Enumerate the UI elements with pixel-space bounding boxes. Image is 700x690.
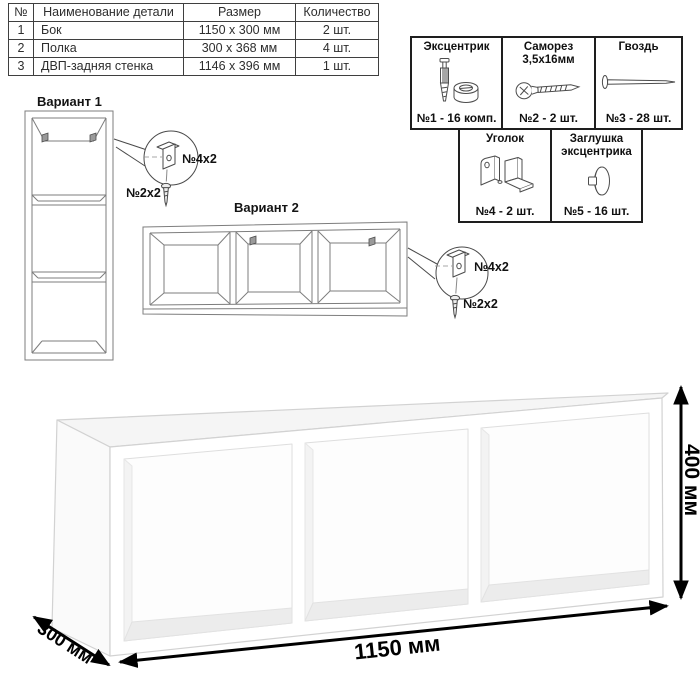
part-qty: 2 шт. bbox=[296, 22, 379, 40]
cam-bolt-icon bbox=[426, 54, 488, 111]
hardware-cell-nail: Гвоздь №3 - 28 шт. bbox=[594, 38, 681, 128]
part-num: 1 bbox=[9, 22, 34, 40]
part-size: 300 x 368 мм bbox=[184, 40, 296, 58]
screw-qty-label: №2x2 bbox=[463, 297, 498, 311]
hardware-qty: №3 - 28 шт. bbox=[606, 111, 672, 125]
hardware-cell-screw: Саморез 3,5х16мм №2 - 2 шт. bbox=[501, 38, 594, 128]
shelf-3d-drawing: 1150 мм 400 мм 300 мм bbox=[0, 370, 700, 690]
part-qty: 4 шт. bbox=[296, 40, 379, 58]
col-header-num: № bbox=[9, 4, 34, 22]
part-size: 1150 x 300 мм bbox=[184, 22, 296, 40]
variant2-callout: №4x2 №2x2 bbox=[408, 247, 509, 318]
variant2-shelf-wireframe bbox=[143, 222, 407, 316]
part-qty: 1 шт. bbox=[296, 58, 379, 76]
variant1-shelf-wireframe bbox=[25, 111, 113, 360]
cam-cap-icon bbox=[571, 159, 623, 204]
table-row: 3 ДВП-задняя стенка 1146 x 396 мм 1 шт. bbox=[9, 58, 379, 76]
assembly-instruction-sheet: № Наименование детали Размер Количество … bbox=[0, 0, 700, 690]
hardware-cell-cam-cap: Заглушка эксцентрика №5 - 16 шт. bbox=[550, 130, 641, 221]
hardware-qty: №5 - 16 шт. bbox=[564, 204, 630, 218]
bracket-qty-label: №4x2 bbox=[182, 152, 217, 166]
col-header-size: Размер bbox=[184, 4, 296, 22]
part-name: Бок bbox=[34, 22, 184, 40]
nail-icon bbox=[600, 54, 678, 111]
hardware-title: Гвоздь bbox=[618, 41, 658, 54]
col-header-qty: Количество bbox=[296, 4, 379, 22]
hardware-qty: №2 - 2 шт. bbox=[519, 111, 578, 125]
hardware-title: Заглушка эксцентрика bbox=[554, 133, 639, 159]
part-num: 2 bbox=[9, 40, 34, 58]
bracket-qty-label: №4x2 bbox=[474, 260, 509, 274]
variant1-title: Вариант 1 bbox=[37, 94, 102, 109]
hardware-qty: №1 - 16 комп. bbox=[417, 111, 497, 125]
parts-table: № Наименование детали Размер Количество … bbox=[8, 3, 379, 76]
variant2-diagram: №4x2 №2x2 bbox=[130, 195, 520, 340]
part-size: 1146 x 396 мм bbox=[184, 58, 296, 76]
parts-table-header: № Наименование детали Размер Количество bbox=[9, 4, 379, 22]
screw-icon bbox=[512, 67, 586, 111]
hardware-panel-row-1: Эксцентрик bbox=[410, 36, 683, 130]
part-name: ДВП-задняя стенка bbox=[34, 58, 184, 76]
part-num: 3 bbox=[9, 58, 34, 76]
height-dimension-label: 400 мм bbox=[680, 444, 700, 516]
table-row: 1 Бок 1150 x 300 мм 2 шт. bbox=[9, 22, 379, 40]
col-header-name: Наименование детали bbox=[34, 4, 184, 22]
hardware-cell-cam-bolt: Эксцентрик bbox=[412, 38, 501, 128]
part-name: Полка bbox=[34, 40, 184, 58]
hardware-title: Уголок bbox=[486, 133, 524, 146]
table-row: 2 Полка 300 x 368 мм 4 шт. bbox=[9, 40, 379, 58]
screw-small-icon bbox=[451, 295, 460, 317]
hardware-title: Саморез 3,5х16мм bbox=[505, 41, 592, 67]
hardware-title: Эксцентрик bbox=[423, 41, 489, 54]
